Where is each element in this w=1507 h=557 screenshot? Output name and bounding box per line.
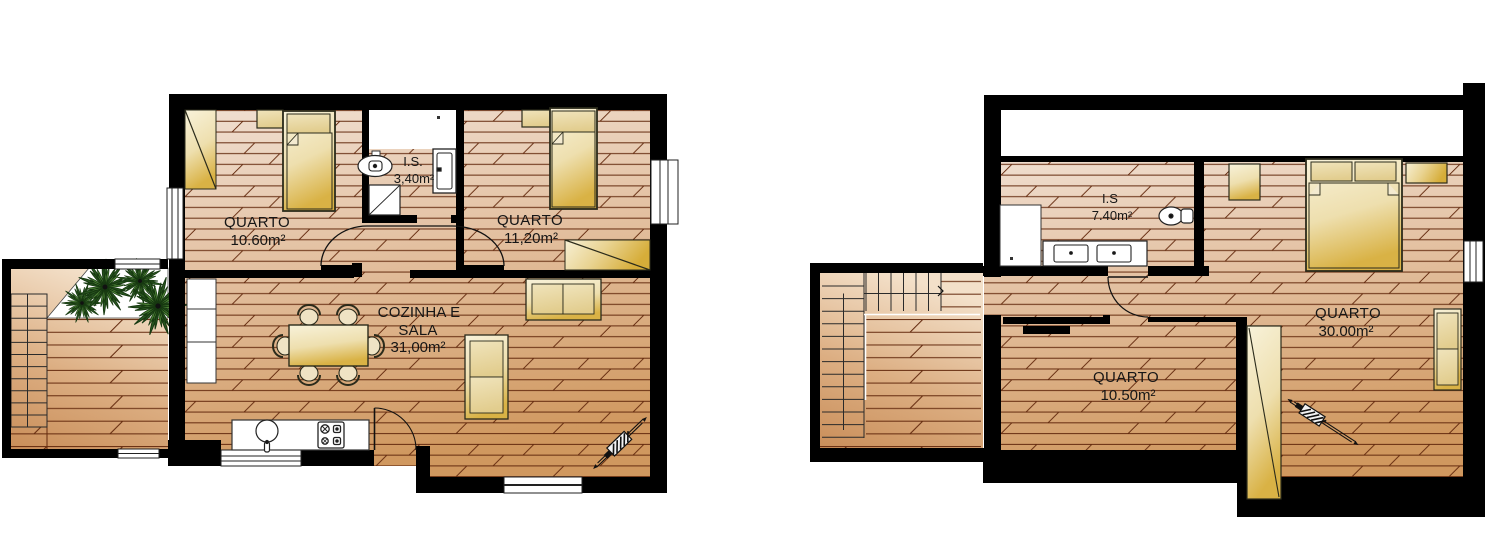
svg-text:31,00m²: 31,00m² [390, 339, 445, 356]
svg-text:SALA: SALA [398, 322, 437, 339]
svg-text:7.40m²: 7.40m² [1092, 208, 1133, 223]
svg-text:QUARTO: QUARTO [1315, 305, 1381, 322]
svg-text:10.50m²: 10.50m² [1100, 387, 1155, 404]
svg-text:10.60m²: 10.60m² [230, 232, 285, 249]
svg-text:30.00m²: 30.00m² [1318, 323, 1373, 340]
svg-text:3,40m²: 3,40m² [394, 171, 435, 186]
svg-text:QUARTO: QUARTO [497, 212, 563, 229]
svg-text:QUARTO: QUARTO [224, 214, 290, 231]
svg-text:I.S: I.S [1102, 191, 1118, 206]
svg-text:QUARTO: QUARTO [1093, 369, 1159, 386]
svg-text:11,20m²: 11,20m² [504, 230, 558, 247]
svg-text:I.S.: I.S. [403, 154, 423, 169]
svg-text:COZINHA E: COZINHA E [378, 304, 461, 321]
